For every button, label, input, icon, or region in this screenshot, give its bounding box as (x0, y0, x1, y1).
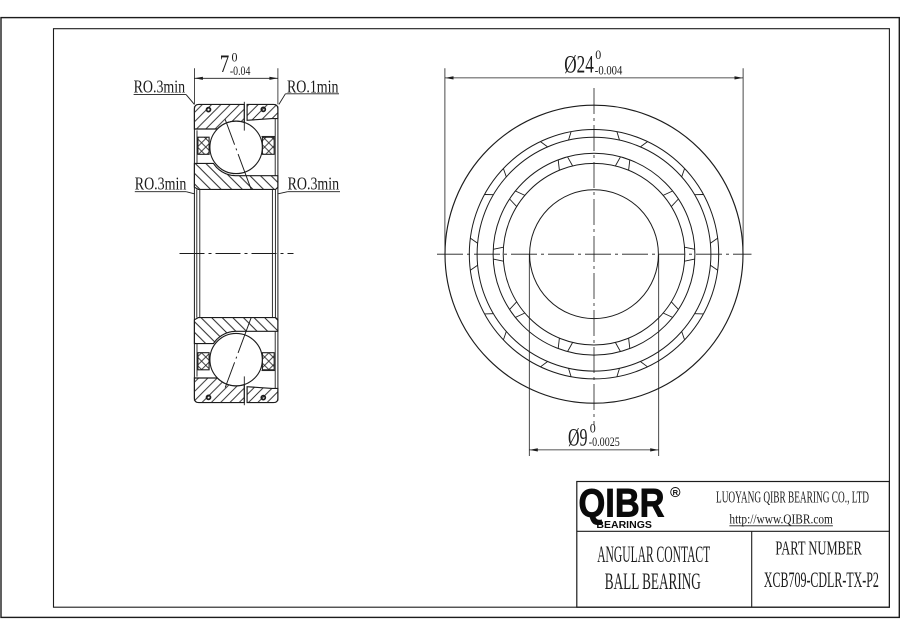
svg-text:BEARINGS: BEARINGS (596, 520, 652, 531)
svg-text:RO.3min: RO.3min (135, 173, 187, 193)
svg-text:LUOYANG QIBR BEARING CO., LTD: LUOYANG QIBR BEARING CO., LTD (716, 488, 869, 507)
svg-text:RO.3min: RO.3min (134, 76, 186, 96)
svg-text:http://www.QIBR.com: http://www.QIBR.com (729, 512, 833, 527)
svg-text:-0.0025: -0.0025 (589, 435, 620, 449)
svg-text:XCB709-CDLR-TX-P2: XCB709-CDLR-TX-P2 (764, 567, 879, 592)
svg-text:0: 0 (595, 48, 601, 62)
svg-text:Ø9: Ø9 (568, 424, 588, 451)
svg-text:-0.04: -0.04 (230, 64, 251, 78)
svg-text:7: 7 (220, 51, 230, 78)
svg-text:0: 0 (590, 422, 596, 436)
svg-text:0: 0 (232, 51, 238, 65)
svg-text:R: R (673, 488, 679, 497)
svg-text:Ø24: Ø24 (564, 51, 594, 78)
svg-text:BALL BEARING: BALL BEARING (605, 569, 701, 594)
svg-text:-0.004: -0.004 (595, 63, 623, 77)
svg-text:RO.1min: RO.1min (287, 76, 339, 96)
svg-text:RO.3min: RO.3min (288, 173, 340, 193)
svg-text:PART NUMBER: PART NUMBER (775, 537, 862, 559)
svg-text:ANGULAR CONTACT: ANGULAR CONTACT (597, 542, 710, 567)
